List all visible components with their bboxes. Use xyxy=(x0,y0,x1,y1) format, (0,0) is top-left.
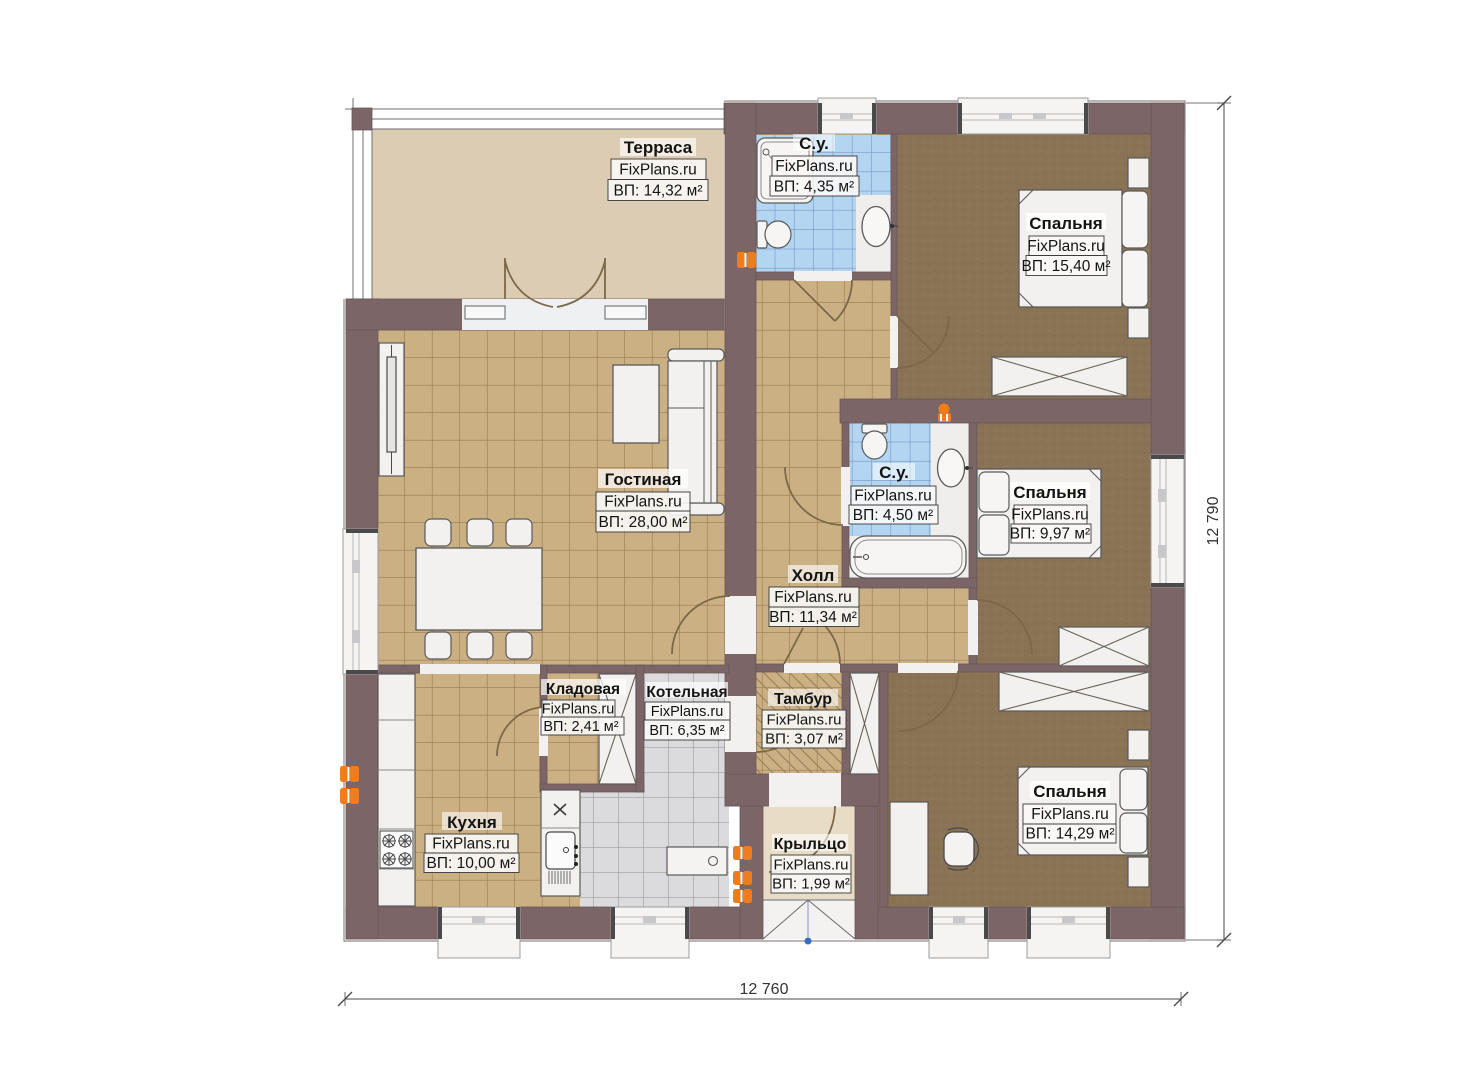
svg-text:FixPlans.ru: FixPlans.ru xyxy=(775,158,853,175)
svg-text:Кладовая: Кладовая xyxy=(546,681,620,698)
svg-text:С.у.: С.у. xyxy=(799,134,829,153)
svg-text:ВП: 11,34 м²: ВП: 11,34 м² xyxy=(769,609,857,626)
svg-text:ВП: 14,32 м²: ВП: 14,32 м² xyxy=(613,183,702,200)
svg-text:Тамбур: Тамбур xyxy=(774,691,832,708)
svg-text:ВП: 1,99 м²: ВП: 1,99 м² xyxy=(772,876,850,893)
svg-text:Гостиная: Гостиная xyxy=(605,470,682,489)
svg-text:ВП: 28,00 м²: ВП: 28,00 м² xyxy=(598,514,687,531)
svg-text:FixPlans.ru: FixPlans.ru xyxy=(619,162,697,179)
svg-text:Котельная: Котельная xyxy=(646,684,727,701)
svg-text:Спальня: Спальня xyxy=(1033,782,1106,801)
svg-text:FixPlans.ru: FixPlans.ru xyxy=(1011,507,1089,524)
svg-text:ВП: 3,07 м²: ВП: 3,07 м² xyxy=(765,731,843,748)
svg-text:ВП: 9,97 м²: ВП: 9,97 м² xyxy=(1010,526,1090,543)
svg-text:12 760: 12 760 xyxy=(740,981,789,998)
svg-text:FixPlans.ru: FixPlans.ru xyxy=(604,494,682,511)
svg-text:Кухня: Кухня xyxy=(447,813,497,832)
svg-text:Крыльцо: Крыльцо xyxy=(774,836,847,853)
svg-text:FixPlans.ru: FixPlans.ru xyxy=(774,589,852,606)
svg-text:ВП: 4,50 м²: ВП: 4,50 м² xyxy=(853,507,933,524)
svg-text:ВП: 4,35 м²: ВП: 4,35 м² xyxy=(774,179,854,196)
svg-text:FixPlans.ru: FixPlans.ru xyxy=(766,712,841,729)
svg-text:Терраса: Терраса xyxy=(624,138,693,157)
svg-text:С.у.: С.у. xyxy=(879,463,909,482)
svg-text:FixPlans.ru: FixPlans.ru xyxy=(432,836,510,853)
svg-text:ВП: 15,40 м²: ВП: 15,40 м² xyxy=(1021,258,1110,275)
svg-text:ВП: 14,29 м²: ВП: 14,29 м² xyxy=(1025,826,1114,843)
svg-text:Спальня: Спальня xyxy=(1029,214,1102,233)
svg-text:ВП: 2,41 м²: ВП: 2,41 м² xyxy=(543,719,618,735)
svg-text:FixPlans.ru: FixPlans.ru xyxy=(773,857,848,874)
svg-text:Спальня: Спальня xyxy=(1013,483,1086,502)
svg-text:FixPlans.ru: FixPlans.ru xyxy=(542,702,615,718)
svg-text:FixPlans.ru: FixPlans.ru xyxy=(854,488,932,505)
svg-text:12 790: 12 790 xyxy=(1205,496,1222,545)
svg-text:ВП: 6,35 м²: ВП: 6,35 м² xyxy=(649,723,724,739)
svg-text:Холл: Холл xyxy=(792,566,835,585)
svg-text:ВП: 10,00 м²: ВП: 10,00 м² xyxy=(426,855,515,872)
svg-text:FixPlans.ru: FixPlans.ru xyxy=(1031,806,1109,823)
svg-text:FixPlans.ru: FixPlans.ru xyxy=(1027,238,1105,255)
svg-text:FixPlans.ru: FixPlans.ru xyxy=(651,704,724,720)
